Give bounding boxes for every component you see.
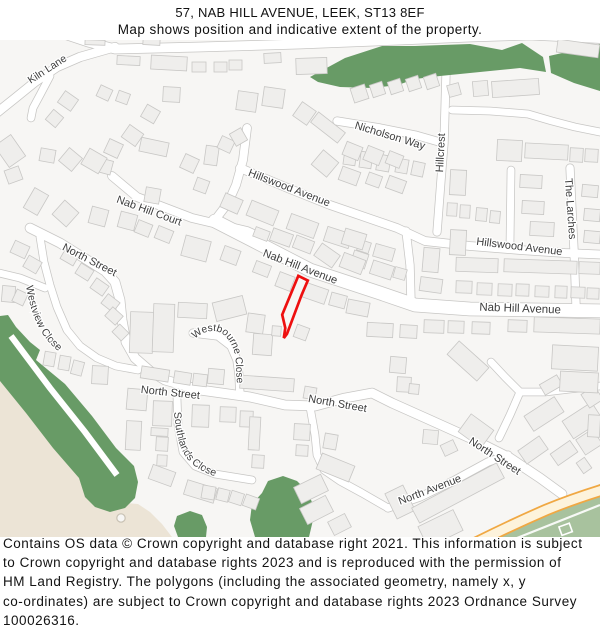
svg-text:Hillcrest: Hillcrest: [434, 133, 448, 173]
